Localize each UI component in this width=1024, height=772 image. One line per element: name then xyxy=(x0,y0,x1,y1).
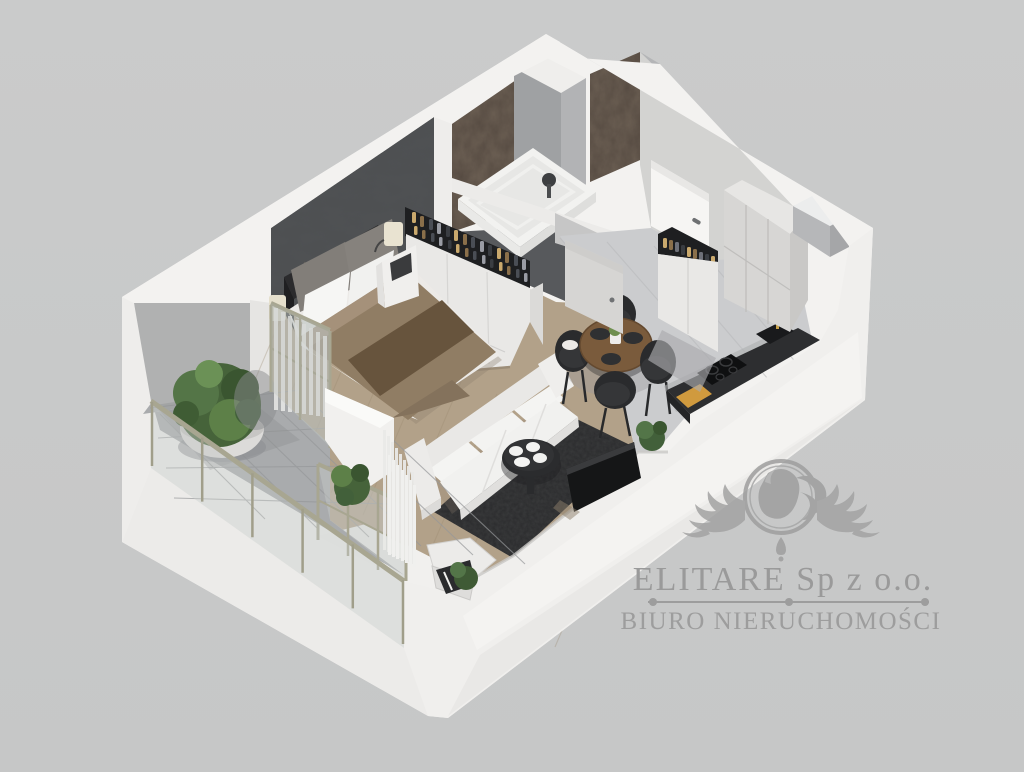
svg-text:ELITARE Sp z o.o.: ELITARE Sp z o.o. xyxy=(633,561,933,598)
svg-text:BIURO NIERUCHOMOŚCI: BIURO NIERUCHOMOŚCI xyxy=(621,607,942,635)
